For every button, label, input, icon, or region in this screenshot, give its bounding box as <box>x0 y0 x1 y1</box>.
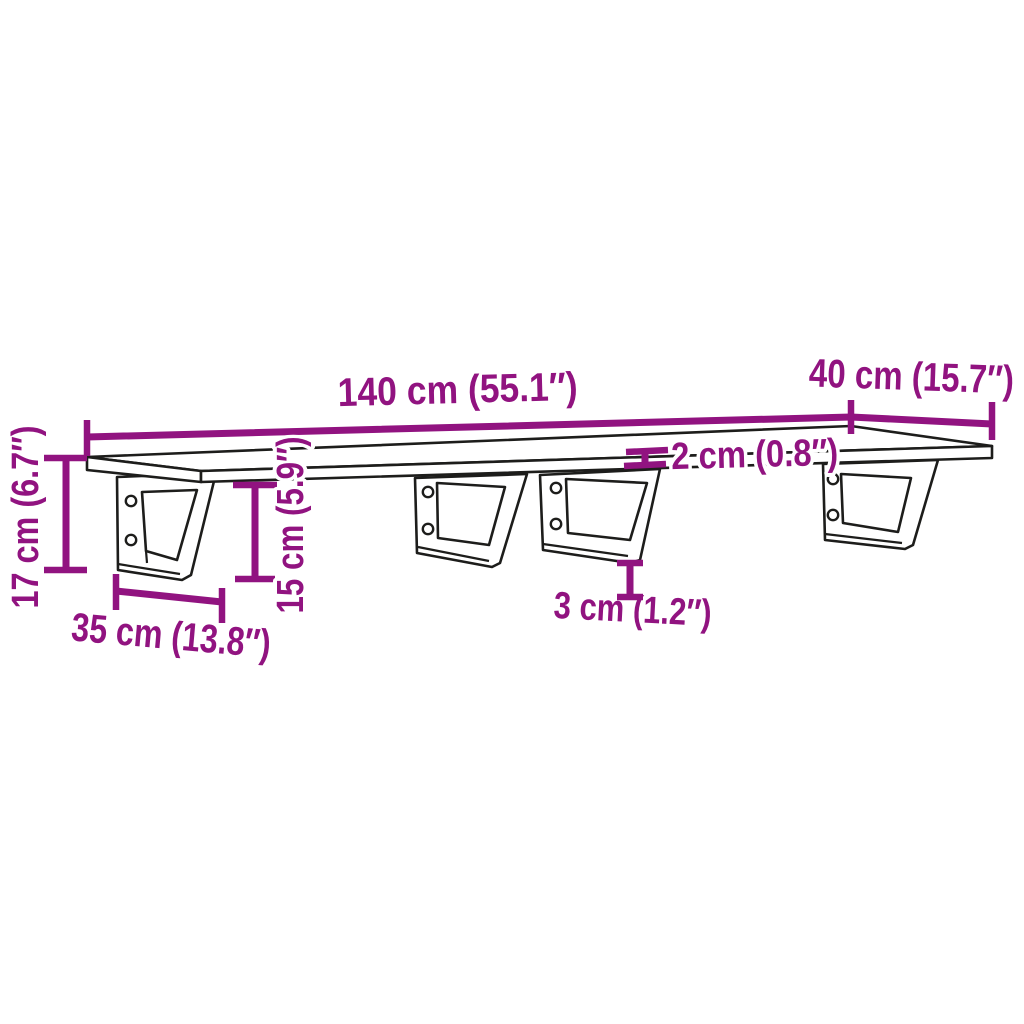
bracket-2 <box>415 474 527 567</box>
bracket-3 <box>540 469 660 563</box>
dimension-label-bracket-depth: 35 cm (13.8″) <box>70 605 273 666</box>
dimension-label-height: 17 cm (6.7″) <box>5 426 47 609</box>
dimension-label-bracket-height: 15 cm (5.9″) <box>270 437 312 614</box>
shelf-dimension-diagram: 140 cm (55.1″) 40 cm (15.7″) 2 cm (0.8″)… <box>0 0 1024 1024</box>
bracket-1 <box>117 473 216 580</box>
screw-icon <box>423 524 433 534</box>
screw-icon <box>126 535 136 545</box>
bracket-1-plate-edge <box>146 551 147 563</box>
screw-icon <box>828 474 838 484</box>
screw-icon <box>126 496 136 506</box>
screw-icon <box>423 487 433 497</box>
screw-icon <box>828 510 838 520</box>
bracket-4 <box>823 460 938 549</box>
dimension-height-line <box>44 458 87 570</box>
bracket-4-window <box>841 474 911 532</box>
screw-icon <box>551 519 561 529</box>
dimension-label-depth: 40 cm (15.7″) <box>808 351 1014 402</box>
diagram-canvas: 140 cm (55.1″) 40 cm (15.7″) 2 cm (0.8″)… <box>0 0 1024 1024</box>
dimension-label-length: 140 cm (55.1″) <box>337 365 578 415</box>
dimension-label-bracket-thickness: 3 cm (1.2″) <box>553 585 713 635</box>
screw-icon <box>551 483 561 493</box>
dimension-label-thickness: 2 cm (0.8″) <box>671 432 839 478</box>
